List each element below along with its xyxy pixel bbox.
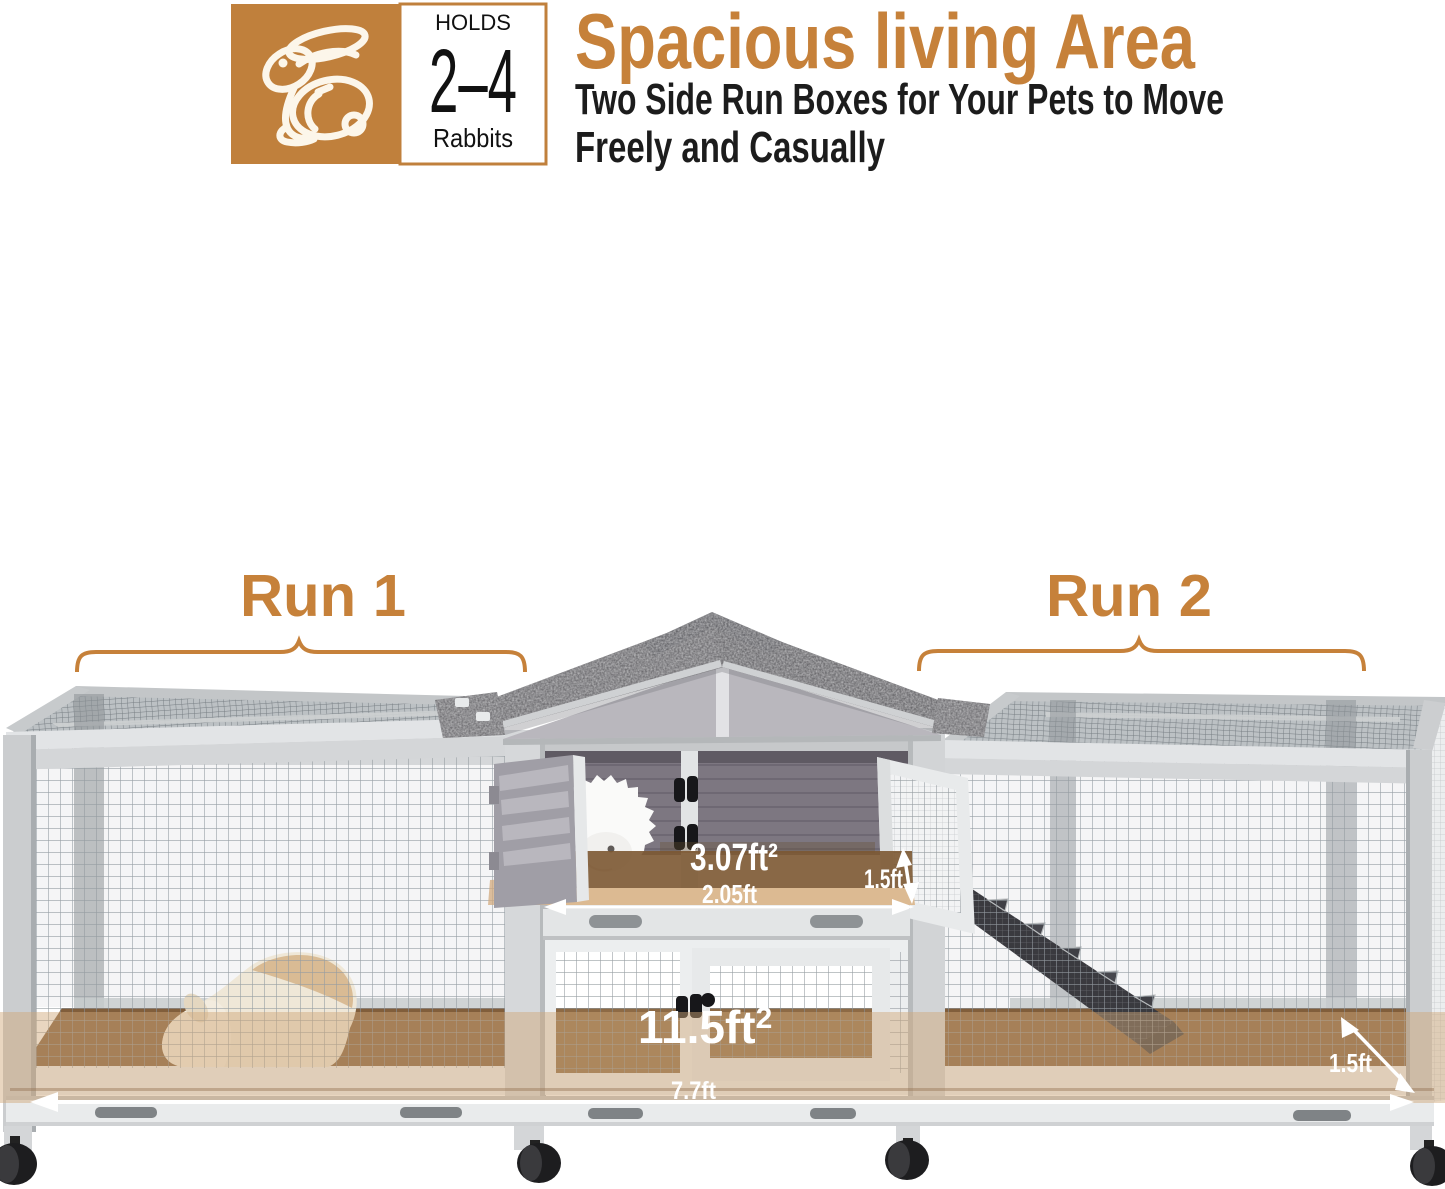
svg-text:1.5ft: 1.5ft [1329,1048,1372,1078]
svg-text:Spacious living Area: Spacious living Area [575,0,1195,85]
svg-text:Freely and Casually: Freely and Casually [575,123,885,172]
svg-text:Rabbits: Rabbits [433,123,513,153]
svg-text:1.5ft: 1.5ft [864,864,903,894]
svg-text:Run 1: Run 1 [240,563,406,629]
svg-text:2.05ft: 2.05ft [702,879,757,909]
svg-text:Two Side Run Boxes for Your Pe: Two Side Run Boxes for Your Pets to Move [575,75,1224,124]
svg-text:Run 2: Run 2 [1046,563,1212,629]
svg-text:11.5ft2: 11.5ft2 [638,1001,772,1053]
svg-text:3.07ft²: 3.07ft² [690,837,778,879]
svg-text:2–4: 2–4 [429,32,517,132]
